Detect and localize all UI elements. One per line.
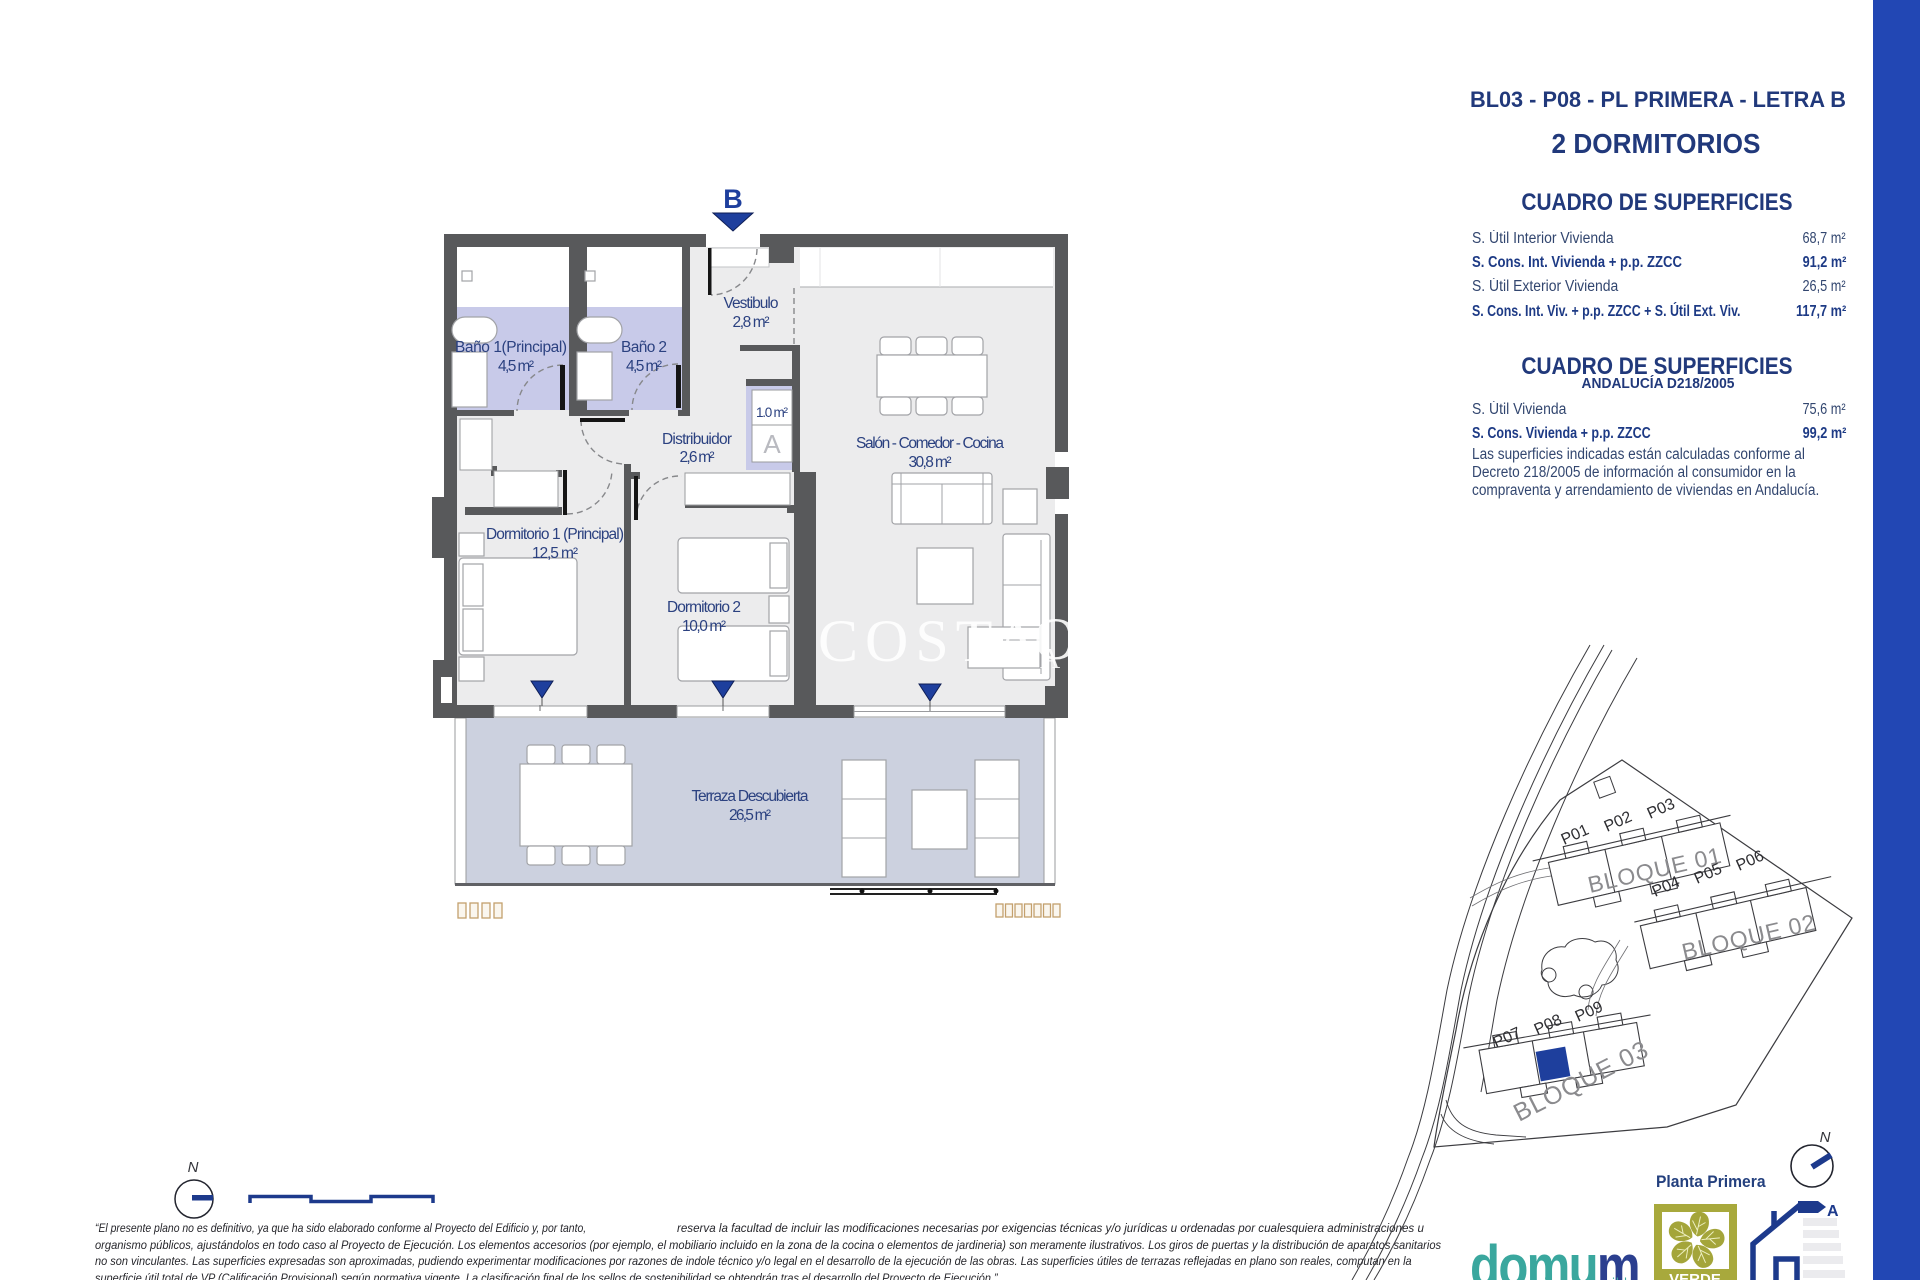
svg-text:P06: P06 [1734,848,1767,875]
svg-text:VERDE: VERDE [1669,1271,1721,1280]
svg-text:N: N [1820,1129,1831,1146]
svg-text:P03: P03 [1645,796,1678,823]
svg-text:A: A [1827,1203,1839,1220]
svg-text:N: N [188,1159,199,1176]
